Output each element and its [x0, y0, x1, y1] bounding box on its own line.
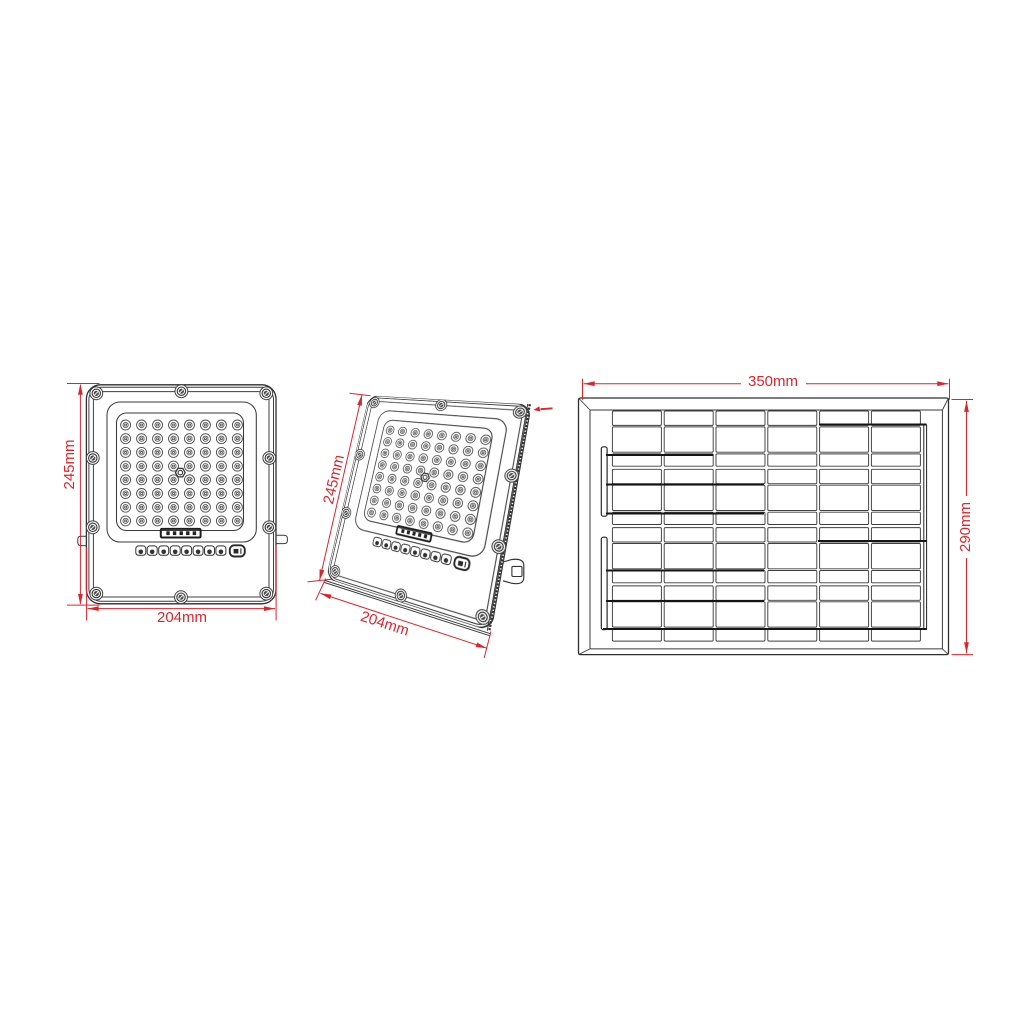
- svg-text:204mm: 204mm: [358, 608, 411, 640]
- svg-text:350mm: 350mm: [748, 373, 798, 390]
- svg-text:245mm: 245mm: [61, 439, 78, 489]
- svg-text:204mm: 204mm: [157, 609, 207, 626]
- svg-text:290mm: 290mm: [957, 502, 974, 552]
